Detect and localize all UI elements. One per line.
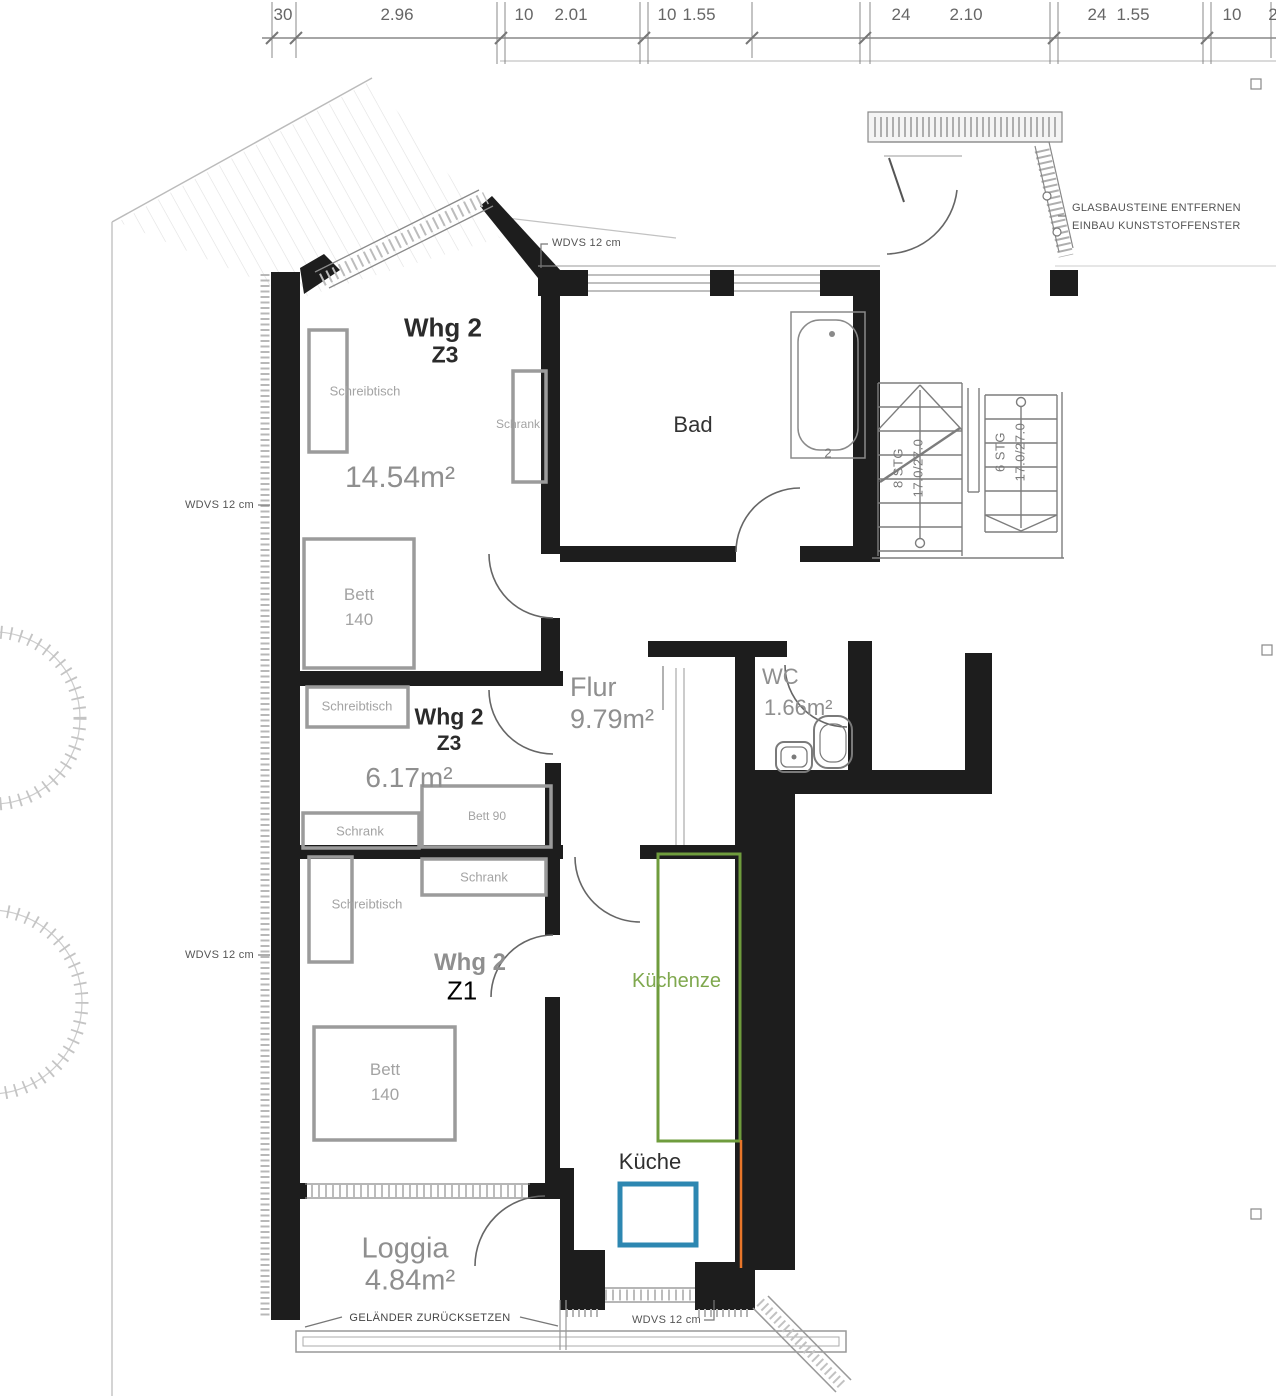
desk-label: Schreibtisch [322,699,393,714]
room-mid-unit: Z3 [437,732,462,756]
stair-run-a-count: 8 STG [891,448,906,488]
dim-label: 30 [274,5,293,25]
entrance-structure [868,112,1276,266]
window-loggia-top [305,1184,530,1198]
edge-markers [1251,79,1272,1219]
stair-run-a-dims: 17.0/27.0 [911,439,926,498]
glass-note-line1: GLASBAUSTEINE ENTFERNEN [1072,202,1241,214]
room-mid-area: 6.17m² [365,762,452,794]
dim-label: 2.96 [380,5,413,25]
wc-name: WC [762,664,799,690]
flur-name: Flur [570,672,617,703]
wdvs-note-bottom: WDVS 12 cm [632,1314,701,1326]
kitchen-name: Küche [619,1149,681,1175]
floor-plan: 30 2.96 10 2.01 10 1.55 24 2.10 24 1.55 … [0,0,1276,1396]
wardrobe-label: Schrank [496,417,540,431]
tree-icon [0,910,82,1094]
room-top-area: 14.54m² [345,461,455,495]
dim-label: 2.10 [949,5,982,25]
bed-label: Bett [370,1060,400,1080]
glass-note-line2: EINBAU KUNSTSTOFFENSTER [1072,220,1241,232]
tub-mark: 2 [824,446,831,461]
dim-label: 24 [1088,5,1107,25]
dim-label: 1.55 [682,5,715,25]
dim-label: 10 [515,5,534,25]
thin-partitions [663,666,684,845]
bed-label: Bett [344,585,374,605]
tree-icon [0,632,80,804]
wc-fixtures [776,716,852,772]
kitchen-unit-label: Küchenze [632,970,721,993]
furniture [303,330,551,1140]
railing-note: GELÄNDER ZURÜCKSETZEN [349,1312,510,1324]
kitchen-unit-outline [620,854,741,1268]
loggia-name: Loggia [361,1233,448,1266]
desk-label: Schreibtisch [332,897,403,912]
room-mid-name: Whg 2 [415,704,484,731]
dim-label: 10 [1223,5,1242,25]
flur-area: 9.79m² [570,704,654,735]
wdvs-note-top: WDVS 12 cm [552,237,621,249]
bed-label: Bett 90 [468,809,506,823]
dim-label: 2 [1268,5,1276,25]
room-top-name: Whg 2 [404,313,482,344]
room-z1-unit: Z1 [447,976,477,1007]
stair-run-b-count: 6 STG [993,432,1008,472]
dim-label: 1.55 [1116,5,1149,25]
wdvs-note-left-upper: WDVS 12 cm [185,499,254,511]
wdvs-note-left-lower: WDVS 12 cm [185,949,254,961]
wc-area: 1.66m² [764,695,832,721]
desk-label: Schreibtisch [330,384,401,399]
wardrobe-label: Schrank [460,870,508,885]
bed-label: 140 [371,1085,399,1105]
bad-name: Bad [673,412,712,438]
stair-run-b-dims: 17.0/27.0 [1013,423,1028,482]
dim-label: 2.01 [554,5,587,25]
bed-label: 140 [345,610,373,630]
dim-label: 10 [658,5,677,25]
loggia-area: 4.84m² [365,1265,455,1298]
wardrobe-label: Schrank [336,824,384,839]
dim-label: 24 [892,5,911,25]
room-top-unit: Z3 [432,342,459,369]
room-z1-name: Whg 2 [434,949,506,977]
